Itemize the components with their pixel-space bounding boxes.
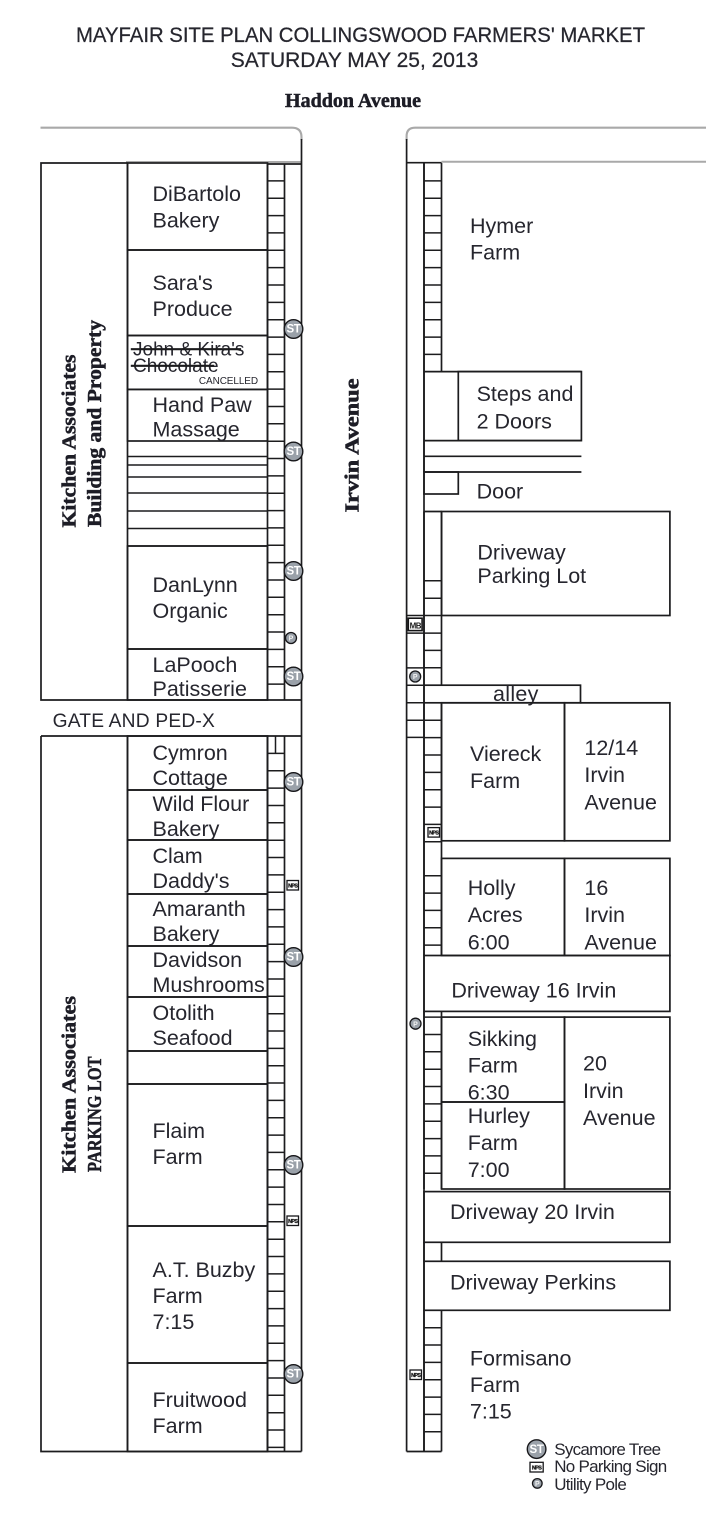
svg-text:Bakery: Bakery xyxy=(153,817,220,841)
svg-text:Hand Paw: Hand Paw xyxy=(153,393,253,417)
svg-text:2 Doors: 2 Doors xyxy=(477,410,552,434)
svg-text:Driveway: Driveway xyxy=(477,541,566,565)
svg-text:Sara's: Sara's xyxy=(153,271,213,295)
svg-text:NPS: NPS xyxy=(288,884,298,890)
svg-text:Fruitwood: Fruitwood xyxy=(153,1388,247,1412)
svg-text:Sikking: Sikking xyxy=(468,1027,537,1051)
svg-text:Wild Flour: Wild Flour xyxy=(153,792,250,816)
svg-text:Kitchen Associates: Kitchen Associates xyxy=(59,996,81,1173)
svg-text:P: P xyxy=(289,636,294,643)
svg-text:16: 16 xyxy=(584,876,608,900)
svg-text:Farm: Farm xyxy=(468,1054,518,1078)
svg-text:NPS: NPS xyxy=(429,831,439,837)
svg-text:Otolith: Otolith xyxy=(153,1001,215,1025)
svg-text:Farm: Farm xyxy=(468,1131,518,1155)
svg-text:Patisserie: Patisserie xyxy=(153,677,247,701)
svg-text:Davidson: Davidson xyxy=(153,948,243,972)
svg-text:Avenue: Avenue xyxy=(583,1106,656,1130)
svg-text:7:15: 7:15 xyxy=(153,1310,195,1334)
svg-text:Bakery: Bakery xyxy=(153,922,220,946)
svg-text:Irvin: Irvin xyxy=(583,1079,624,1103)
svg-text:Avenue: Avenue xyxy=(584,931,657,955)
svg-text:ST: ST xyxy=(286,952,300,964)
svg-text:Hymer: Hymer xyxy=(470,214,533,238)
svg-text:Organic: Organic xyxy=(153,599,229,623)
svg-text:Cymron: Cymron xyxy=(153,741,228,765)
svg-text:ST: ST xyxy=(286,566,300,578)
svg-text:ST: ST xyxy=(286,1369,300,1381)
svg-text:ST: ST xyxy=(286,777,300,789)
svg-text:P: P xyxy=(535,1481,540,1488)
svg-text:Irvin: Irvin xyxy=(584,763,625,787)
svg-text:Driveway 16 Irvin: Driveway 16 Irvin xyxy=(451,978,616,1002)
svg-text:Seafood: Seafood xyxy=(153,1026,233,1050)
svg-text:Acres: Acres xyxy=(468,903,523,927)
svg-text:Daddy's: Daddy's xyxy=(153,869,230,893)
svg-text:Farm: Farm xyxy=(153,1284,203,1308)
svg-text:Utility Pole: Utility Pole xyxy=(554,1475,626,1494)
svg-text:Produce: Produce xyxy=(153,297,233,321)
svg-text:CANCELLED: CANCELLED xyxy=(199,376,258,387)
svg-text:Irvin Avenue: Irvin Avenue xyxy=(342,379,364,513)
svg-text:Massage: Massage xyxy=(153,418,240,442)
svg-text:7:00: 7:00 xyxy=(468,1158,510,1182)
svg-text:Cottage: Cottage xyxy=(153,766,228,790)
svg-text:Hurley: Hurley xyxy=(468,1104,530,1128)
svg-text:Holly: Holly xyxy=(468,876,516,900)
svg-text:Kitchen Associates: Kitchen Associates xyxy=(59,354,81,527)
svg-text:No Parking Sign: No Parking Sign xyxy=(554,1457,667,1476)
svg-text:Parking Lot: Parking Lot xyxy=(477,564,586,588)
svg-text:PARKING LOT: PARKING LOT xyxy=(84,1056,106,1172)
svg-text:SATURDAY MAY 25, 2013: SATURDAY MAY 25, 2013 xyxy=(231,48,479,72)
svg-text:Farm: Farm xyxy=(153,1414,203,1438)
svg-text:ST: ST xyxy=(286,671,300,683)
svg-text:Amaranth: Amaranth xyxy=(153,897,246,921)
svg-text:Formisano: Formisano xyxy=(470,1347,572,1371)
svg-text:12/14: 12/14 xyxy=(584,736,638,760)
svg-text:ST: ST xyxy=(530,1444,544,1456)
svg-text:Steps and: Steps and xyxy=(477,382,574,406)
svg-text:Building and Property: Building and Property xyxy=(84,319,106,527)
svg-text:ST: ST xyxy=(286,1160,300,1172)
svg-text:Avenue: Avenue xyxy=(584,791,657,815)
svg-text:7:15: 7:15 xyxy=(470,1400,512,1424)
svg-text:Driveway 20 Irvin: Driveway 20 Irvin xyxy=(450,1200,615,1224)
svg-text:A.T. Buzby: A.T. Buzby xyxy=(153,1258,256,1282)
svg-text:P: P xyxy=(413,674,418,681)
svg-text:Clam: Clam xyxy=(153,844,203,868)
svg-text:Flaim: Flaim xyxy=(153,1119,206,1143)
svg-text:Farm: Farm xyxy=(470,1373,520,1397)
svg-text:P: P xyxy=(413,1021,418,1028)
svg-text:MB: MB xyxy=(410,622,422,631)
svg-text:Viereck: Viereck xyxy=(470,742,542,766)
svg-text:Farm: Farm xyxy=(470,769,520,793)
svg-text:6:00: 6:00 xyxy=(468,931,510,955)
svg-text:Haddon Avenue: Haddon Avenue xyxy=(285,90,421,112)
svg-text:NPS: NPS xyxy=(288,1219,298,1225)
svg-text:Bakery: Bakery xyxy=(153,209,220,233)
svg-text:ST: ST xyxy=(286,446,300,458)
svg-text:DiBartolo: DiBartolo xyxy=(153,182,241,206)
svg-text:NPS: NPS xyxy=(411,1373,421,1379)
svg-text:GATE AND PED-X: GATE AND PED-X xyxy=(53,711,215,732)
svg-text:ST: ST xyxy=(286,324,300,336)
svg-text:6:30: 6:30 xyxy=(468,1080,510,1104)
svg-text:MAYFAIR SITE PLAN COLLINGSWOOD: MAYFAIR SITE PLAN COLLINGSWOOD FARMERS' … xyxy=(76,23,645,47)
svg-text:Irvin: Irvin xyxy=(584,903,625,927)
svg-text:NPS: NPS xyxy=(532,1466,542,1472)
svg-text:Door: Door xyxy=(477,480,524,504)
svg-text:Driveway Perkins: Driveway Perkins xyxy=(450,1271,616,1295)
svg-text:DanLynn: DanLynn xyxy=(153,573,238,597)
svg-text:Mushrooms: Mushrooms xyxy=(153,973,265,997)
svg-text:20: 20 xyxy=(583,1052,607,1076)
svg-text:Farm: Farm xyxy=(153,1145,203,1169)
svg-text:LaPooch: LaPooch xyxy=(153,653,238,677)
svg-text:Farm: Farm xyxy=(470,241,520,265)
